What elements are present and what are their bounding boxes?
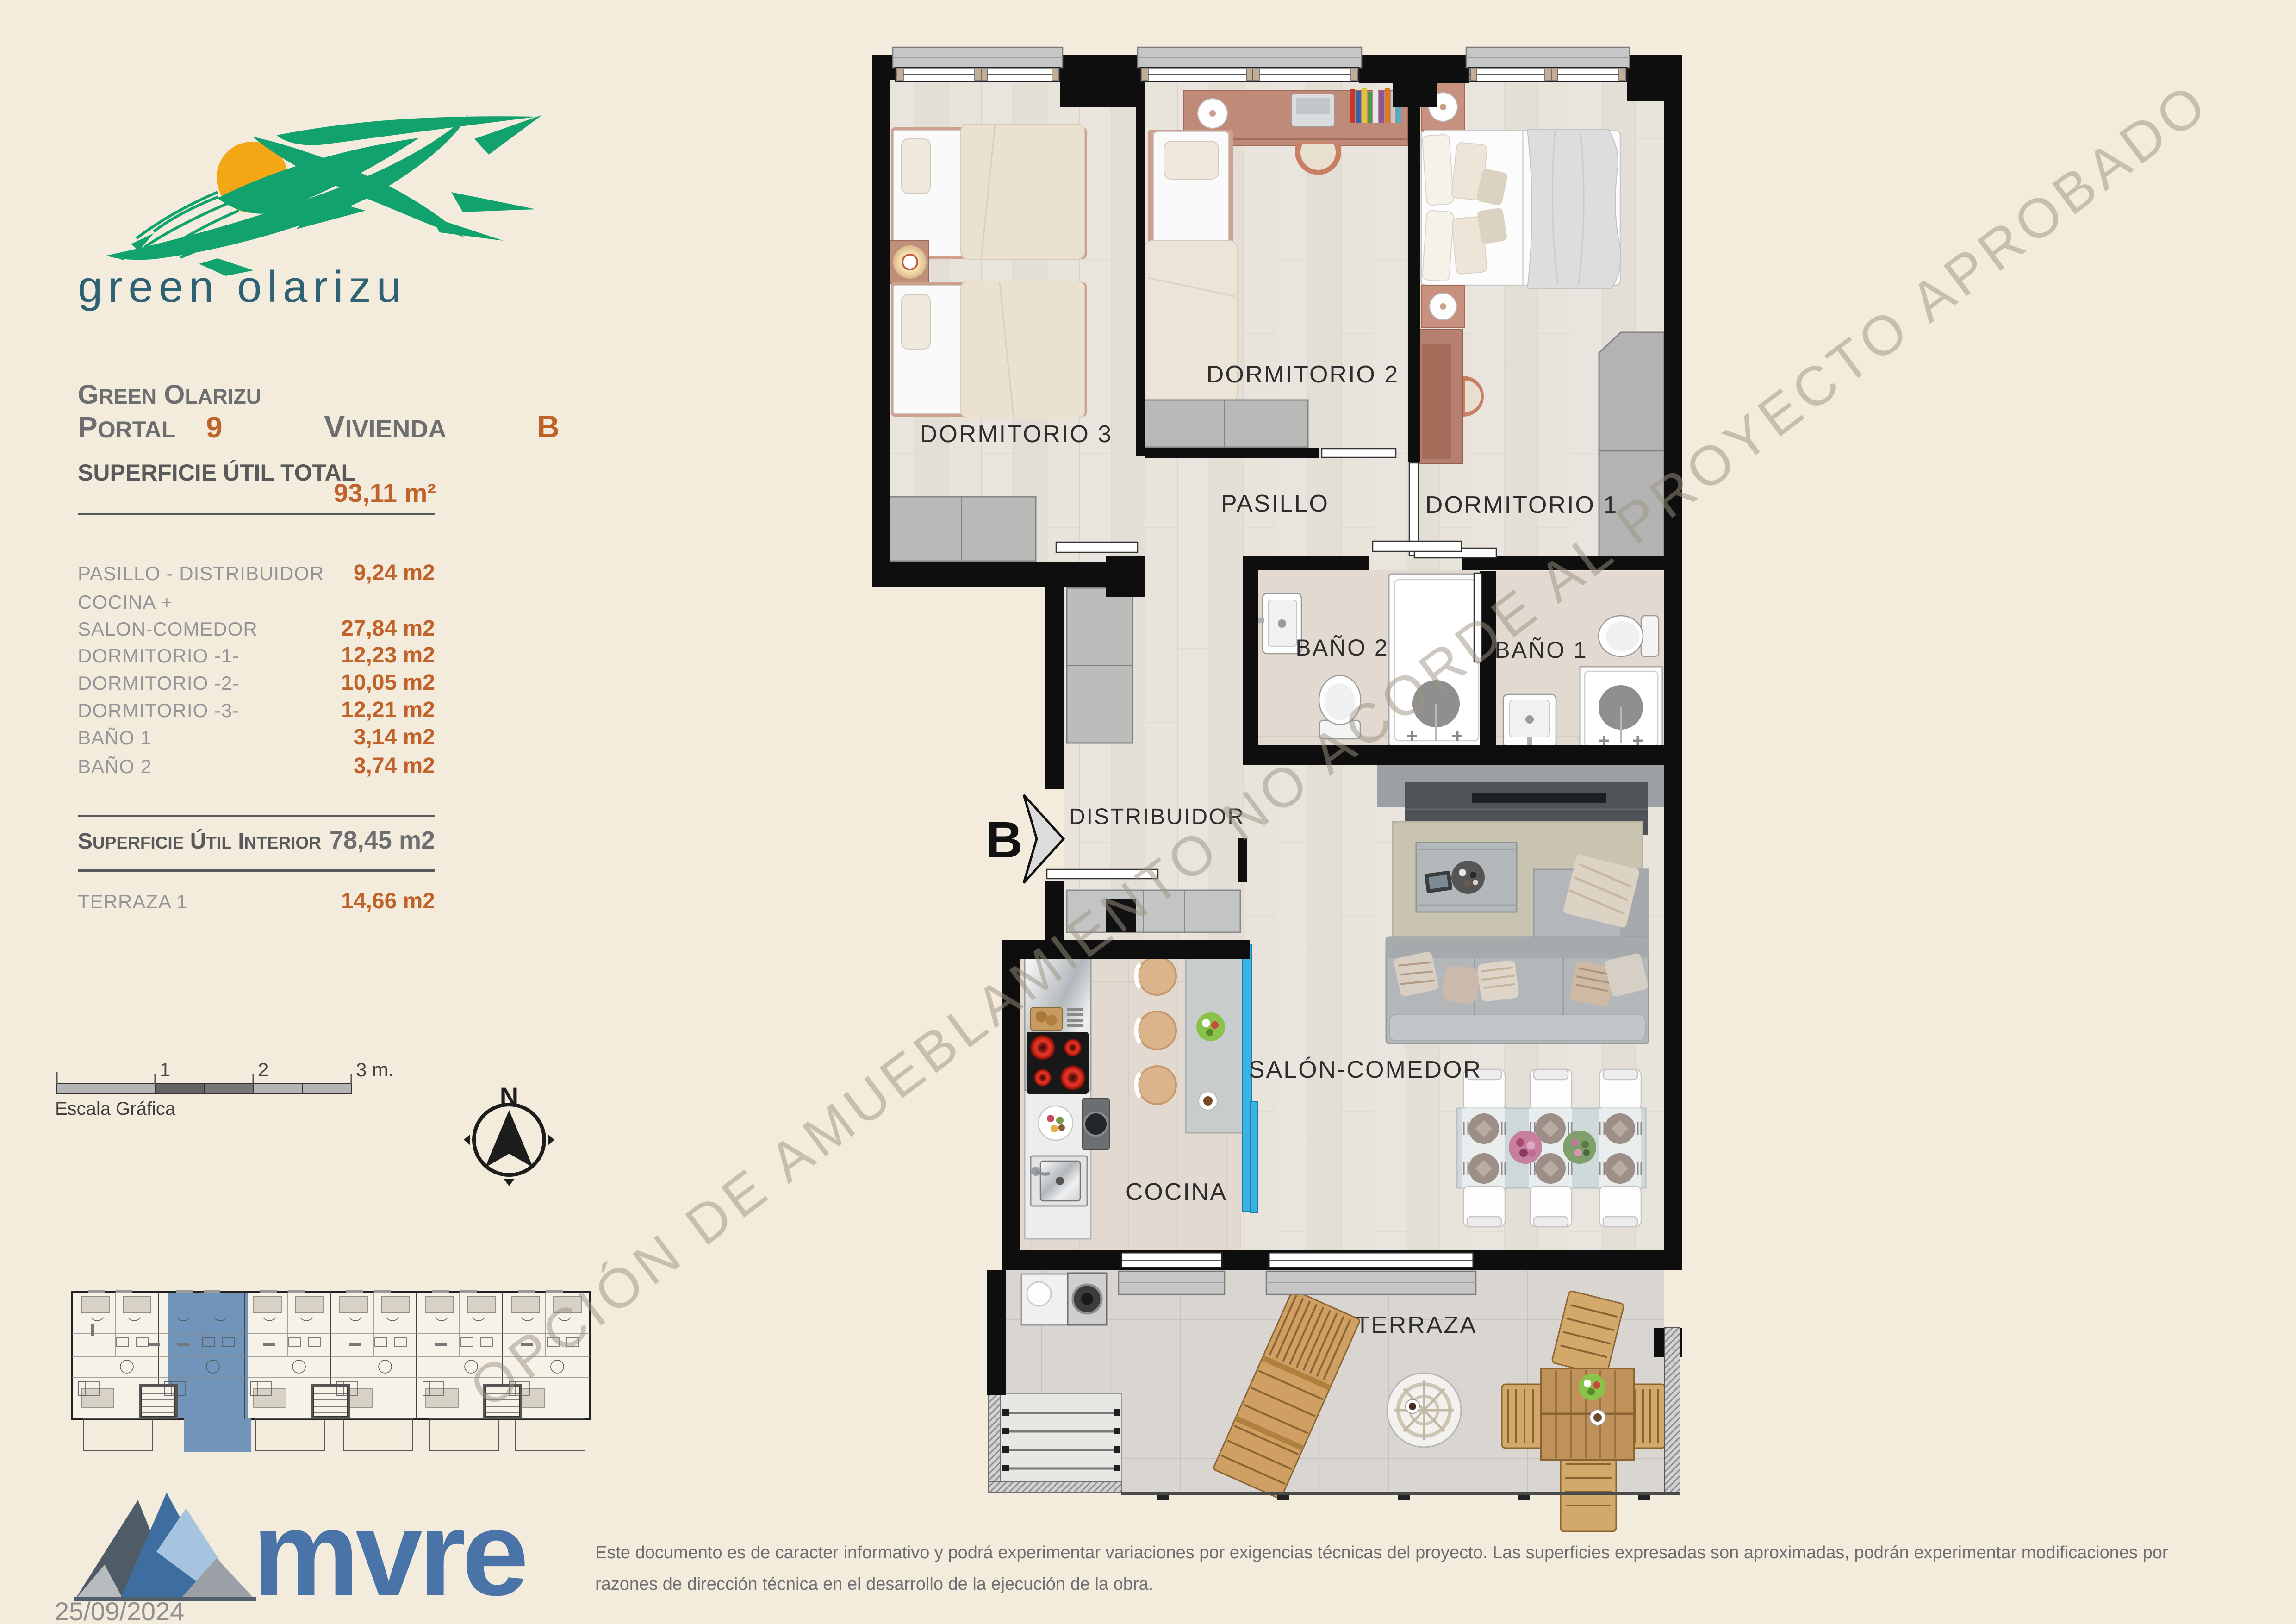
svg-text:PASILLO: PASILLO	[1221, 490, 1329, 517]
svg-text:green olarizu: green olarizu	[78, 262, 407, 312]
svg-text:DORMITORIO -1-: DORMITORIO -1-	[78, 645, 239, 667]
svg-text:COCINA: COCINA	[1126, 1179, 1227, 1206]
svg-text:9,24 m2: 9,24 m2	[354, 561, 435, 585]
svg-text:COCINA +: COCINA +	[78, 591, 173, 613]
svg-text:mvre: mvre	[252, 1487, 526, 1621]
svg-text:DORMITORIO -3-: DORMITORIO -3-	[78, 700, 239, 721]
svg-text:DORMITORIO -2-: DORMITORIO -2-	[78, 672, 239, 694]
svg-text:BAÑO 2: BAÑO 2	[1295, 635, 1388, 661]
svg-text:12,23 m2: 12,23 m2	[341, 643, 435, 668]
svg-text:Este documento es de caracter: Este documento es de caracter informativ…	[595, 1543, 2168, 1562]
svg-text:DORMITORIO 3: DORMITORIO 3	[920, 421, 1113, 448]
svg-text:TERRAZA 1: TERRAZA 1	[78, 891, 188, 912]
svg-text:TERRAZA: TERRAZA	[1355, 1312, 1477, 1339]
svg-text:SUPERFICIE ÚTIL TOTAL: SUPERFICIE ÚTIL TOTAL	[78, 460, 355, 486]
svg-text:25/09/2024: 25/09/2024	[55, 1597, 184, 1624]
svg-text:SALÓN-COMEDOR: SALÓN-COMEDOR	[1249, 1056, 1482, 1083]
svg-text:BAÑO 1: BAÑO 1	[78, 727, 152, 749]
svg-text:PASILLO - DISTRIBUIDOR: PASILLO - DISTRIBUIDOR	[78, 562, 324, 584]
svg-text:12,21 m2: 12,21 m2	[341, 698, 435, 722]
svg-text:BAÑO 2: BAÑO 2	[78, 756, 152, 777]
svg-text:3 m.: 3 m.	[356, 1059, 394, 1081]
svg-text:B: B	[537, 409, 560, 444]
svg-text:N: N	[500, 1082, 518, 1111]
svg-text:DORMITORIO 1: DORMITORIO 1	[1425, 492, 1618, 518]
svg-text:93,11 m²: 93,11 m²	[334, 478, 436, 507]
svg-text:B: B	[986, 812, 1022, 868]
svg-text:78,45 m2: 78,45 m2	[330, 826, 435, 854]
svg-text:Escala Gráfica: Escala Gráfica	[55, 1099, 176, 1119]
svg-text:9: 9	[206, 411, 223, 444]
svg-text:3,74 m2: 3,74 m2	[354, 754, 435, 778]
svg-text:27,84 m2: 27,84 m2	[341, 616, 435, 641]
svg-text:DORMITORIO 2: DORMITORIO 2	[1207, 361, 1399, 388]
svg-text:10,05 m2: 10,05 m2	[341, 670, 435, 695]
svg-text:3,14 m2: 3,14 m2	[354, 725, 435, 750]
svg-text:razones de dirección técnica e: razones de dirección técnica en el desar…	[595, 1574, 1153, 1594]
svg-text:2: 2	[258, 1059, 268, 1081]
svg-text:SALON-COMEDOR: SALON-COMEDOR	[78, 618, 258, 640]
svg-text:14,66 m2: 14,66 m2	[341, 889, 435, 913]
svg-text:1: 1	[160, 1059, 170, 1081]
